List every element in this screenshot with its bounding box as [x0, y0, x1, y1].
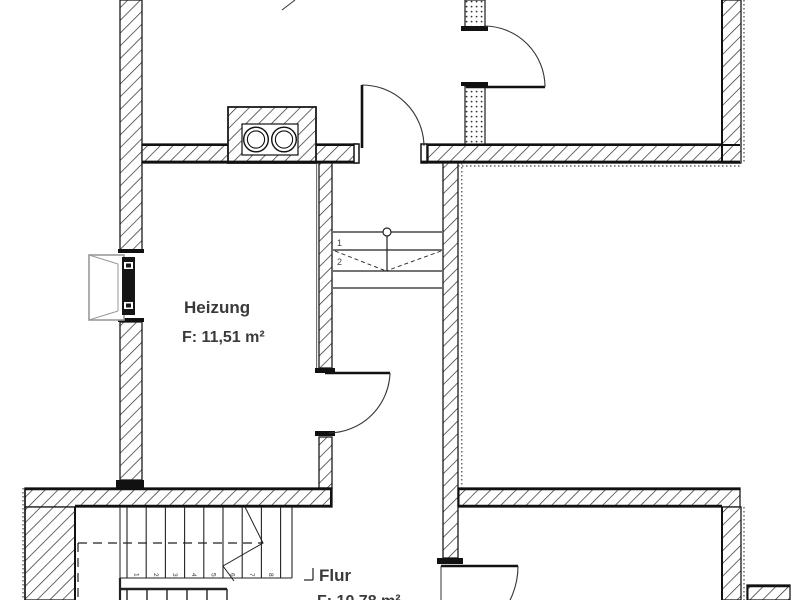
wall-top-seg1	[142, 144, 228, 163]
floor-plan-drawing: 1 2 1 2 3 4 5 6 7 8	[0, 0, 800, 600]
wall-bottom-left	[25, 488, 332, 507]
handrail-post	[383, 228, 391, 236]
wall-shaft-right	[443, 163, 458, 558]
wall-left-upper	[120, 0, 142, 250]
wall-shaft-left-upper	[319, 163, 332, 368]
flight-step-number: 6	[229, 573, 236, 577]
flight-step-number: 5	[209, 573, 216, 577]
wall-outer-left-lower	[25, 507, 75, 600]
room-label-flur: Flur	[319, 566, 351, 585]
window-hinge-top-pin	[126, 264, 131, 268]
room-area-flur: F: 10,78 m²	[317, 593, 401, 600]
cap-shaft-left-bottom	[315, 431, 335, 436]
partition-upper	[465, 0, 485, 27]
wall-left-lower	[120, 322, 142, 480]
wall-fragment-bottom-right	[747, 585, 790, 600]
cap-door-top-right	[421, 144, 427, 163]
flight-step-number: 7	[248, 573, 255, 577]
landing-step-number-2: 2	[337, 257, 342, 267]
chimney-vents	[242, 124, 298, 155]
wall-right-lower	[722, 507, 741, 600]
wall-top-seg3	[428, 144, 740, 163]
flight-step-number: 1	[133, 573, 140, 577]
flight-step-number: 8	[267, 573, 274, 577]
wall-top-seg2	[316, 144, 357, 163]
partition-lower	[465, 86, 485, 144]
flight-step-number: 3	[171, 573, 178, 577]
cap-partition-lower	[461, 82, 488, 86]
room-label-heizung: Heizung	[184, 298, 250, 317]
wall-right-upper	[722, 0, 741, 163]
window-left	[89, 255, 135, 320]
window-reveal-box	[89, 255, 124, 320]
cap-shaft-right-bottom	[437, 558, 463, 564]
landing-step-number-1: 1	[337, 238, 342, 248]
room-area-heizung: F: 11,51 m²	[182, 329, 265, 346]
wall-shaft-left-lower	[319, 437, 332, 488]
window-hinge-bottom-pin	[126, 304, 131, 308]
flight-step-number: 4	[190, 573, 197, 577]
cap-left-wall-bottom	[116, 480, 144, 488]
wall-bottom-right	[458, 488, 740, 507]
cap-partition-upper	[461, 26, 488, 31]
cap-window-top	[118, 249, 144, 253]
flight-step-number: 2	[152, 573, 159, 577]
cap-door-top-left	[354, 144, 359, 163]
